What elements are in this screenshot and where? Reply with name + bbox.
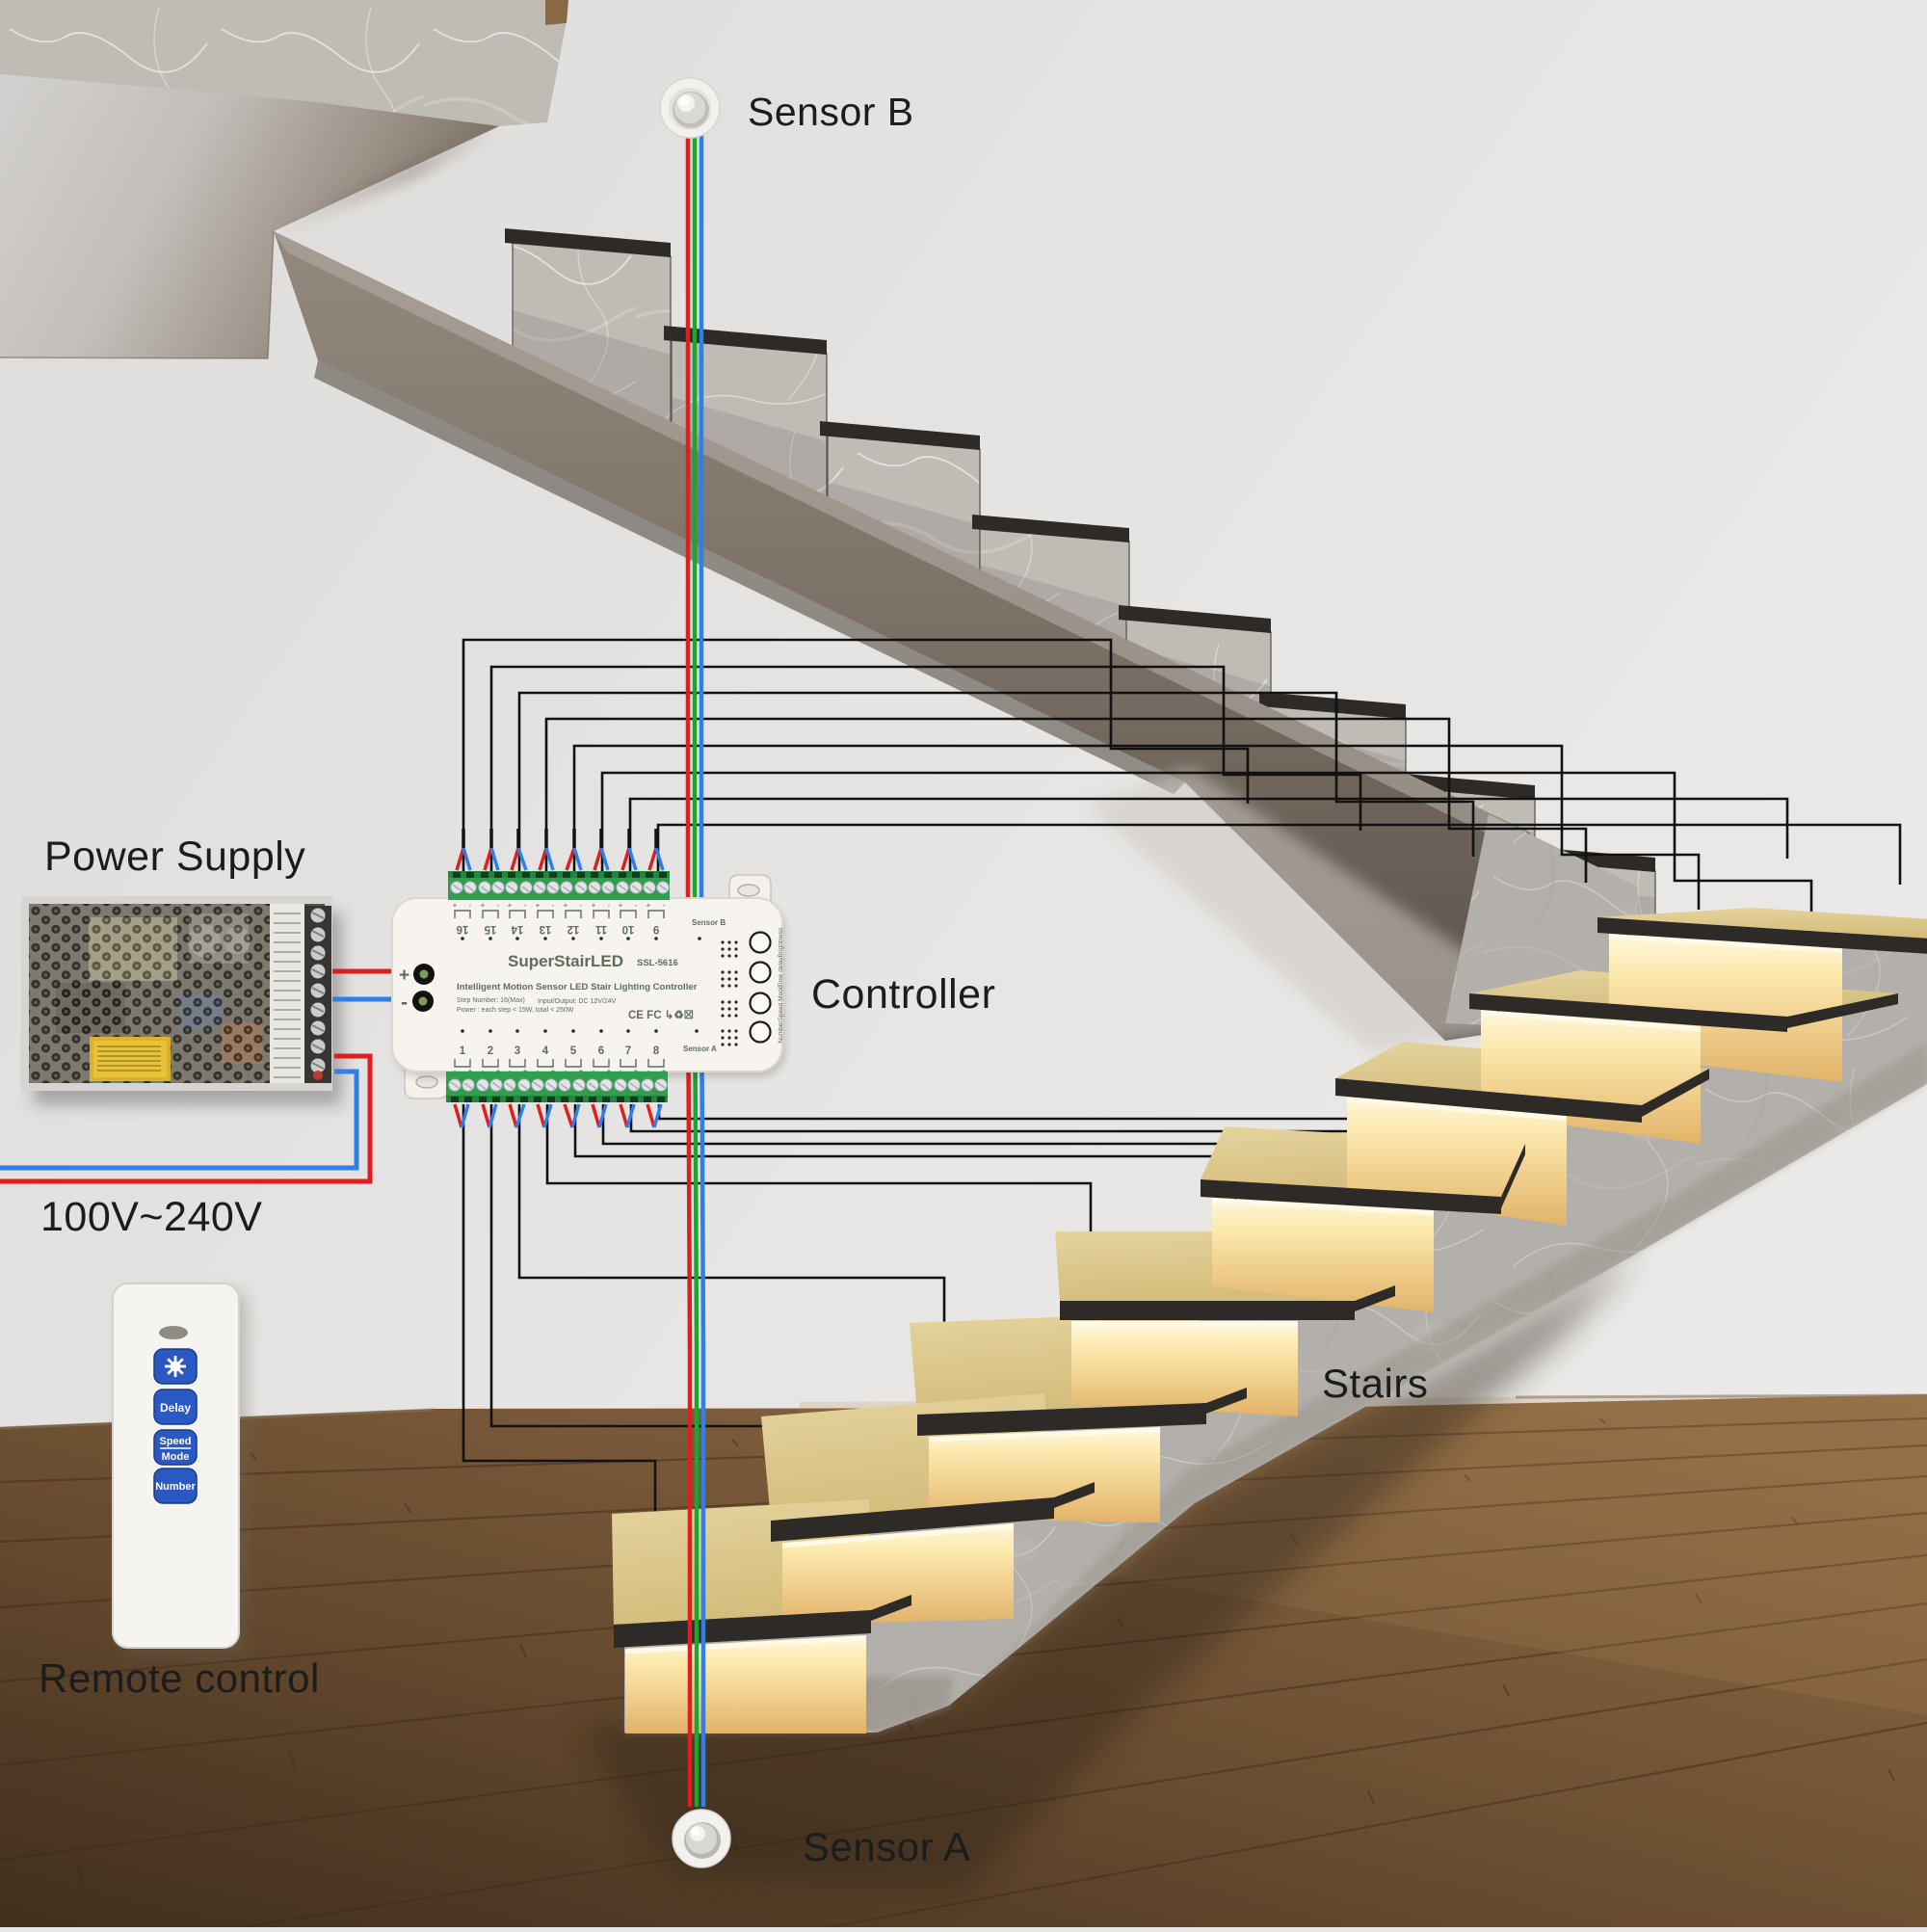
svg-text:Power : each step < 15W, total: Power : each step < 15W, total < 250W	[457, 1007, 574, 1014]
svg-text:1: 1	[460, 1045, 466, 1057]
svg-text:SSL-5616: SSL-5616	[637, 958, 678, 968]
svg-text:Number: Number	[778, 1020, 784, 1044]
svg-text:-: -	[620, 1067, 622, 1075]
svg-text:10: 10	[622, 923, 635, 935]
svg-text:Speed: Speed	[159, 1436, 191, 1447]
svg-text:+: +	[619, 901, 623, 910]
svg-text:+: +	[579, 1067, 584, 1075]
svg-text:100V~240V: 100V~240V	[40, 1194, 262, 1240]
svg-text:Stairs: Stairs	[1322, 1361, 1428, 1406]
svg-text:+: +	[481, 901, 486, 910]
svg-text:Step Number: 16(Max): Step Number: 16(Max)	[457, 997, 525, 1004]
svg-text:+: +	[523, 1067, 528, 1075]
svg-text:-: -	[608, 901, 611, 910]
svg-text:6: 6	[598, 1045, 604, 1057]
svg-text:Input/Output: DC 12V/24V: Input/Output: DC 12V/24V	[538, 998, 617, 1005]
svg-text:+: +	[607, 1067, 612, 1075]
svg-text:-: -	[647, 1067, 650, 1075]
svg-text:Power Supply: Power Supply	[44, 834, 305, 880]
svg-text:4: 4	[542, 1045, 549, 1057]
svg-text:+: +	[564, 901, 568, 910]
svg-text:+: +	[508, 901, 513, 910]
svg-text:-: -	[580, 901, 583, 910]
svg-text:-: -	[401, 992, 408, 1014]
svg-text:-: -	[593, 1067, 595, 1075]
svg-text:5: 5	[570, 1045, 577, 1057]
svg-text:-: -	[497, 901, 500, 910]
svg-text:SuperStairLED: SuperStairLED	[508, 952, 623, 970]
svg-text:-: -	[454, 1067, 457, 1075]
svg-text:+: +	[592, 901, 596, 910]
svg-text:-: -	[565, 1067, 568, 1075]
svg-text:-: -	[524, 901, 527, 910]
svg-text:Time delay: Time delay	[778, 956, 784, 987]
svg-text:3: 3	[515, 1045, 520, 1057]
svg-text:14: 14	[511, 923, 523, 935]
svg-text:7: 7	[625, 1045, 631, 1057]
svg-text:Speed Mode: Speed Mode	[778, 985, 784, 1020]
svg-text:+: +	[468, 1067, 473, 1075]
svg-text:Intelligent Motion Sensor LED: Intelligent Motion Sensor LED Stair Ligh…	[457, 982, 698, 992]
svg-text:-: -	[469, 901, 472, 910]
svg-text:+: +	[536, 901, 541, 910]
svg-text:-: -	[552, 901, 555, 910]
svg-text:12: 12	[568, 923, 580, 935]
svg-text:-: -	[663, 901, 666, 910]
svg-text:+: +	[496, 1067, 501, 1075]
svg-text:CE FC ↳♻☒: CE FC ↳♻☒	[628, 1010, 694, 1021]
svg-text:Remote control: Remote control	[39, 1655, 320, 1701]
svg-text:16: 16	[457, 923, 469, 935]
svg-text:11: 11	[594, 923, 607, 935]
svg-text:Mode: Mode	[162, 1451, 190, 1463]
svg-text:-: -	[635, 901, 638, 910]
svg-text:2: 2	[488, 1045, 493, 1057]
svg-text:15: 15	[484, 923, 496, 935]
svg-text:8: 8	[653, 1045, 660, 1057]
svg-text:+: +	[399, 966, 409, 986]
svg-text:+: +	[453, 901, 458, 910]
svg-text:+: +	[551, 1067, 556, 1075]
svg-text:+: +	[662, 1067, 667, 1075]
svg-text:Sensor B: Sensor B	[748, 90, 914, 134]
svg-text:Sensor B: Sensor B	[692, 918, 726, 927]
svg-text:Brightness: Brightness	[778, 927, 784, 957]
svg-text:Sensor A: Sensor A	[803, 1824, 970, 1869]
svg-text:+: +	[647, 901, 651, 910]
svg-text:Number: Number	[155, 1481, 196, 1493]
svg-text:Delay: Delay	[160, 1401, 191, 1415]
svg-text:-: -	[537, 1067, 540, 1075]
svg-text:+: +	[634, 1067, 639, 1075]
svg-text:-: -	[482, 1067, 485, 1075]
svg-text:9: 9	[653, 923, 659, 935]
svg-text:13: 13	[540, 923, 552, 935]
svg-text:Sensor A: Sensor A	[683, 1045, 717, 1053]
svg-text:Controller: Controller	[811, 971, 995, 1018]
svg-text:-: -	[509, 1067, 512, 1075]
